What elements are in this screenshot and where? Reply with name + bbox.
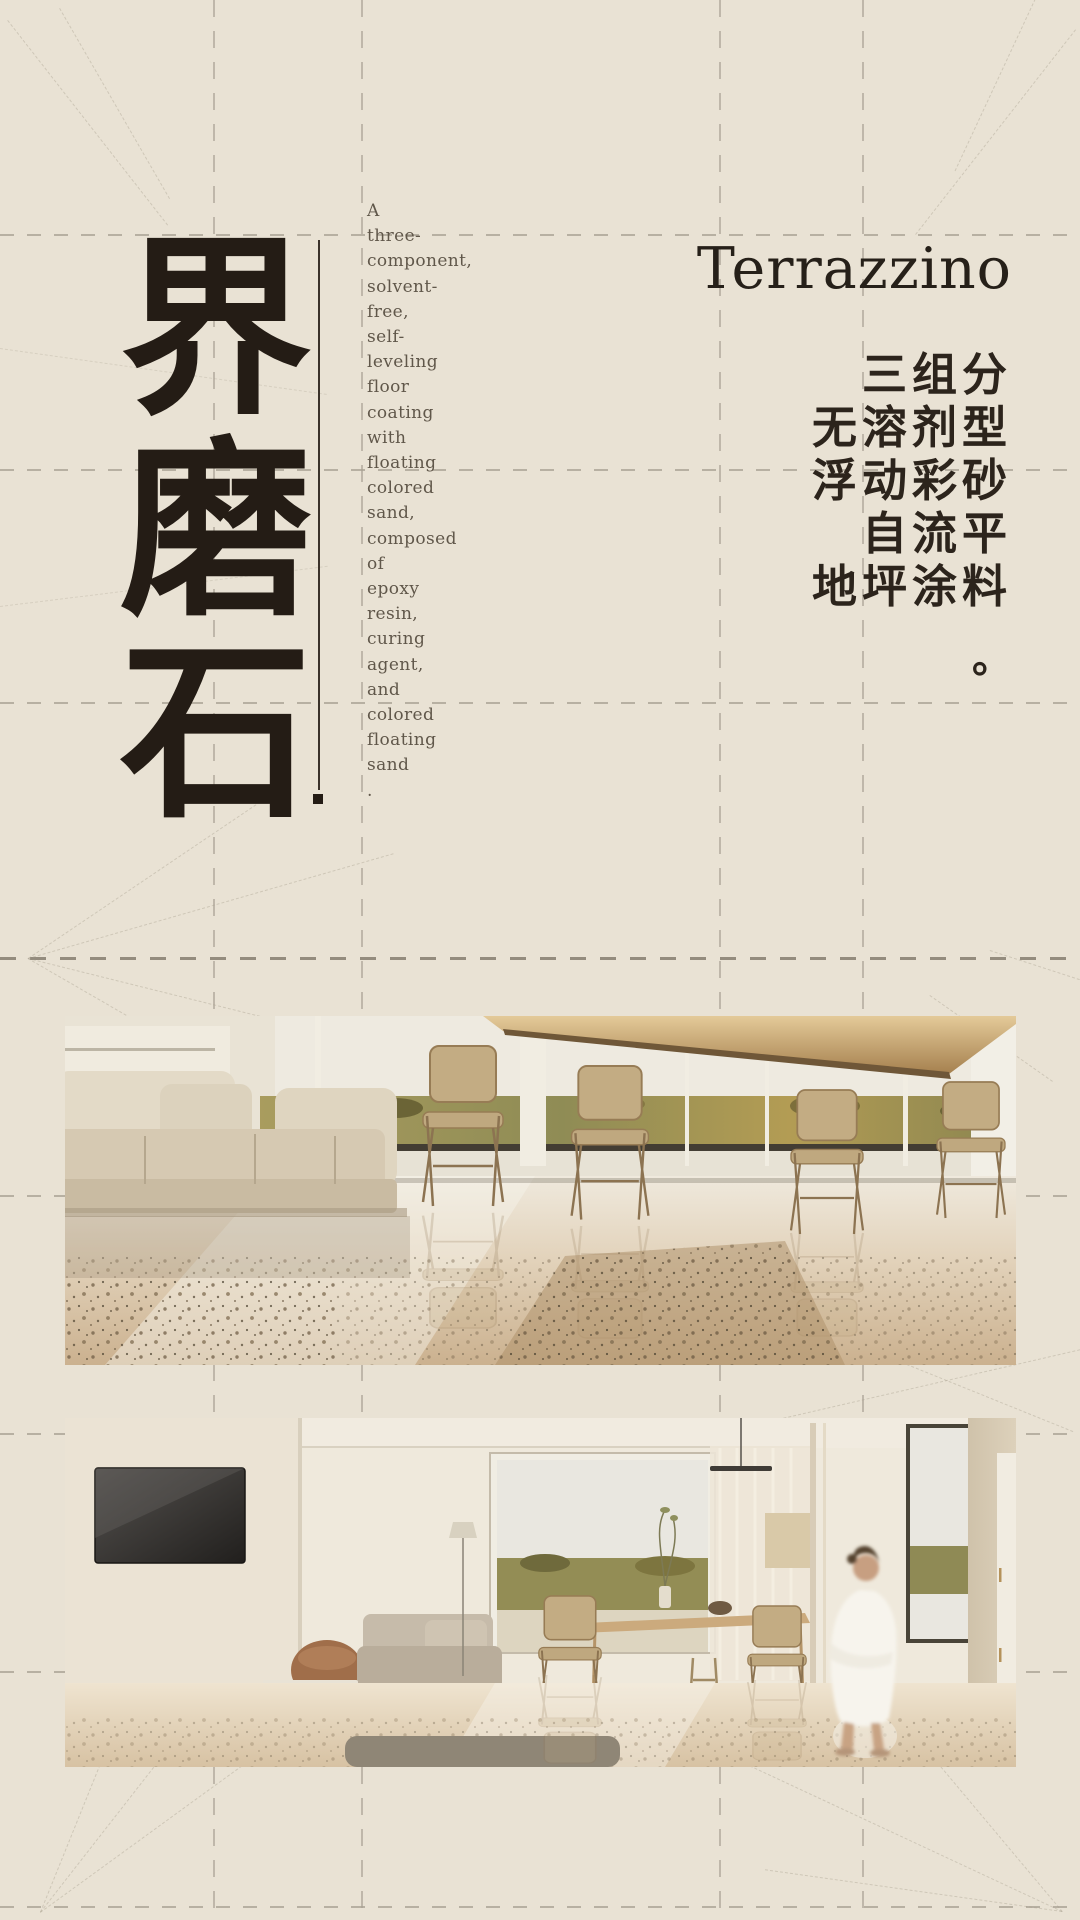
- ray-line: [7, 20, 168, 225]
- interior-photo-1-illustration: [65, 1016, 1016, 1365]
- poster-canvas: 界 磨 石 Athree-component,solvent-free,self…: [0, 0, 1080, 1920]
- description-en-line: coating: [367, 401, 487, 426]
- description-cn: 三组分无溶剂型浮动彩砂自流平地坪涂料 。: [700, 348, 1012, 679]
- description-cn-row: 无溶剂型: [700, 401, 1012, 454]
- description-en-line: colored: [367, 476, 487, 501]
- brand-title-en: Terrazzino: [600, 238, 1012, 300]
- brand-char-3: 石: [90, 633, 342, 833]
- ray-line: [28, 853, 394, 959]
- brand-char-2: 磨: [90, 431, 342, 631]
- description-en-line: resin,: [367, 602, 487, 627]
- interior-photo-living-dining: [65, 1418, 1016, 1767]
- description-en-line: floor: [367, 375, 487, 400]
- description-en-line: agent,: [367, 653, 487, 678]
- vertical-rule: [318, 240, 320, 790]
- description-en-line: three-: [367, 224, 487, 249]
- ray-line: [955, 0, 1040, 171]
- description-en-line: with: [367, 426, 487, 451]
- interior-photo-terrazzo-lounge: [65, 1016, 1016, 1365]
- description-en-line: self-: [367, 325, 487, 350]
- description-en-line: sand,: [367, 501, 487, 526]
- description-en-line: solvent-: [367, 275, 487, 300]
- description-cn-period: 。: [700, 639, 1012, 679]
- description-en-line: sand: [367, 753, 487, 778]
- description-en-line: A: [367, 199, 487, 224]
- grid-hline: [0, 957, 1080, 960]
- description-en-line: composed: [367, 527, 487, 552]
- description-en-line: leveling: [367, 350, 487, 375]
- description-en-line: colored: [367, 703, 487, 728]
- description-cn-row: 浮动彩砂: [700, 454, 1012, 507]
- description-en: Athree-component,solvent-free,self-level…: [367, 199, 487, 804]
- ray-line: [59, 8, 170, 199]
- description-en-line: of: [367, 552, 487, 577]
- brand-char-1: 界: [90, 230, 342, 430]
- description-en-line: floating: [367, 451, 487, 476]
- description-cn-row: 地坪涂料: [700, 560, 1012, 613]
- interior-photo-2-illustration: [65, 1418, 1016, 1767]
- vertical-rule-dot: [313, 794, 323, 804]
- description-en-line: epoxy: [367, 577, 487, 602]
- description-en-line: and: [367, 678, 487, 703]
- ray-line: [915, 29, 1076, 234]
- description-en-line: curing: [367, 627, 487, 652]
- description-en-line: component,: [367, 249, 487, 274]
- description-en-line: .: [367, 779, 487, 804]
- description-cn-row: 三组分: [700, 348, 1012, 401]
- description-en-line: floating: [367, 728, 487, 753]
- description-cn-row: 自流平: [700, 507, 1012, 560]
- description-en-line: free,: [367, 300, 487, 325]
- description-cn-rows: 三组分无溶剂型浮动彩砂自流平地坪涂料: [700, 348, 1012, 613]
- grid-hline: [0, 1906, 1080, 1908]
